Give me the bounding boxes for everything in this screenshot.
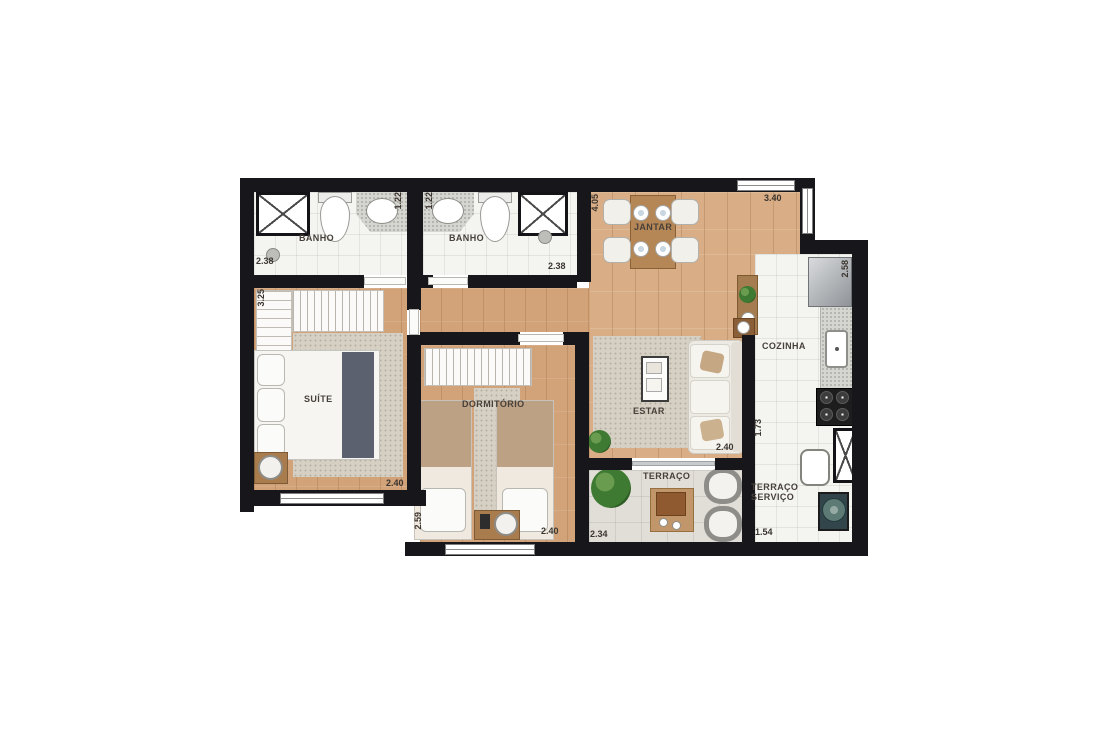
cozinha-label: COZINHA bbox=[762, 341, 806, 351]
washer-drum-icon bbox=[822, 498, 846, 522]
window bbox=[280, 493, 384, 504]
wall bbox=[575, 458, 632, 470]
banho-left-depth-dim: 1.22 bbox=[393, 192, 403, 210]
wall bbox=[468, 275, 577, 288]
door bbox=[409, 309, 419, 335]
plate-icon bbox=[655, 241, 671, 257]
dormitorio-width-dim: 2.40 bbox=[541, 526, 559, 536]
bed-pillow bbox=[420, 488, 466, 532]
banho-left-width-dim: 2.38 bbox=[256, 256, 274, 266]
terraco-servico-label-line2: SERVIÇO bbox=[751, 492, 798, 502]
estar-label: ESTAR bbox=[633, 406, 665, 416]
estar-width-dim: 2.40 bbox=[716, 442, 734, 452]
jantar-depth-dim: 4.05 bbox=[590, 194, 600, 212]
dining-chair bbox=[603, 237, 631, 263]
plant-icon bbox=[739, 286, 756, 303]
shower-head-icon bbox=[538, 230, 552, 244]
magazine bbox=[646, 362, 662, 374]
bed-runner bbox=[342, 352, 374, 458]
wall bbox=[407, 288, 421, 310]
terraco-servico-label: TERRAÇO SERVIÇO bbox=[751, 482, 798, 502]
wall bbox=[420, 332, 520, 345]
throw-pillow bbox=[699, 350, 725, 374]
floor-plan: BANHO BANHO JANTAR COZINHA SUÍTE DORMITÓ… bbox=[0, 0, 1107, 738]
entry-door bbox=[802, 188, 813, 234]
hall-floor bbox=[420, 288, 590, 332]
banho-right-label: BANHO bbox=[449, 233, 484, 243]
door bbox=[364, 277, 406, 285]
wall bbox=[742, 542, 868, 556]
pouf-chair bbox=[704, 506, 742, 542]
door bbox=[428, 277, 468, 285]
plate-icon bbox=[633, 205, 649, 221]
sink-drain-icon bbox=[835, 347, 839, 351]
sink-icon bbox=[432, 198, 464, 224]
plate-icon bbox=[655, 205, 671, 221]
plant-icon bbox=[588, 430, 611, 453]
dining-chair bbox=[671, 237, 699, 263]
bed-blanket bbox=[497, 401, 553, 467]
door bbox=[518, 334, 564, 342]
wall bbox=[407, 178, 423, 288]
burner-icon bbox=[836, 408, 849, 421]
sofa-cushion bbox=[690, 380, 730, 414]
terraco-label: TERRAÇO bbox=[643, 471, 690, 481]
suite-width-dim: 2.40 bbox=[386, 478, 404, 488]
suite-label: SUÍTE bbox=[304, 394, 333, 404]
cup-icon bbox=[659, 518, 668, 527]
wall bbox=[240, 178, 815, 192]
banho-right-depth-dim: 1.22 bbox=[424, 192, 434, 210]
plate-icon bbox=[633, 241, 649, 257]
wall bbox=[575, 332, 589, 556]
decor-object bbox=[480, 514, 490, 529]
cozinha-width-dim: 1.73 bbox=[753, 419, 763, 437]
wall bbox=[254, 275, 364, 288]
terrace-railing bbox=[575, 542, 758, 556]
terrace-plant-icon bbox=[591, 468, 631, 508]
window bbox=[445, 544, 535, 555]
dormitorio-label: DORMITÓRIO bbox=[462, 399, 525, 409]
wall bbox=[852, 240, 868, 556]
terraco-width-dim: 2.34 bbox=[590, 529, 608, 539]
throw-pillow bbox=[699, 418, 724, 442]
suite-depth-dim: 3.25 bbox=[256, 289, 266, 307]
burner-icon bbox=[836, 391, 849, 404]
serving-tray bbox=[656, 492, 686, 516]
wall bbox=[577, 178, 591, 282]
dining-chair bbox=[603, 199, 631, 225]
banho-left-label: BANHO bbox=[299, 233, 334, 243]
table-lamp-icon bbox=[494, 512, 518, 536]
closet-hanger-rod bbox=[424, 348, 532, 386]
pouf-chair bbox=[704, 468, 742, 504]
burner-icon bbox=[820, 391, 833, 404]
dormitorio-depth-dim: 2.59 bbox=[413, 512, 423, 530]
terraco-servico-label-line1: TERRAÇO bbox=[751, 482, 798, 492]
jantar-label: JANTAR bbox=[634, 222, 672, 232]
burner-icon bbox=[820, 408, 833, 421]
shower-box-icon bbox=[256, 192, 310, 236]
bed-pillow bbox=[257, 354, 285, 386]
bed-blanket bbox=[415, 401, 471, 467]
banho-right-width-dim: 2.38 bbox=[548, 261, 566, 271]
wall bbox=[240, 178, 254, 512]
laundry-tank-icon bbox=[800, 449, 830, 486]
table-lamp-icon bbox=[258, 455, 283, 480]
sliding-door bbox=[632, 461, 715, 466]
bed-pillow bbox=[257, 388, 285, 422]
dining-chair bbox=[671, 199, 699, 225]
wall bbox=[742, 335, 755, 556]
decor-bowl-icon bbox=[737, 321, 750, 334]
cup-icon bbox=[672, 521, 681, 530]
closet-hanger-rod bbox=[292, 290, 384, 332]
window bbox=[737, 180, 795, 191]
wall bbox=[407, 335, 421, 490]
jantar-width-dim: 3.40 bbox=[764, 193, 782, 203]
magazine bbox=[646, 378, 662, 392]
terraco-servico-width-dim: 1.54 bbox=[755, 527, 773, 537]
cozinha-depth-dim: 2.58 bbox=[840, 260, 850, 278]
